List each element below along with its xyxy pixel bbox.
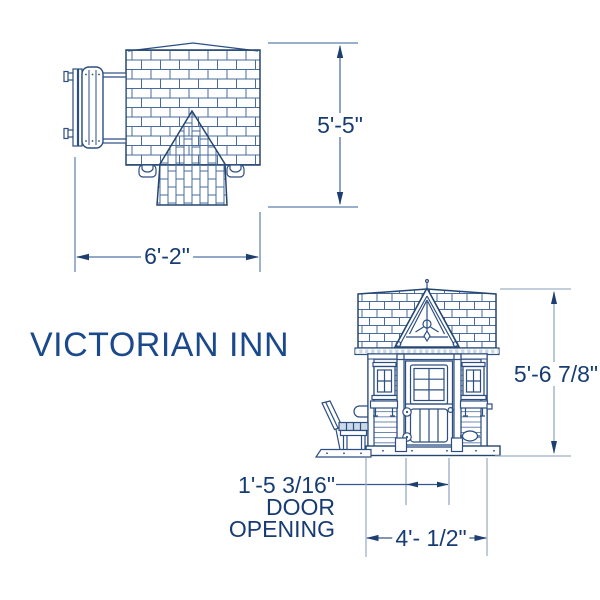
window-right-sill (461, 396, 486, 400)
bench-apron (341, 431, 367, 436)
door-plinth-left (396, 438, 407, 452)
bench-legs (344, 436, 366, 451)
side-peg (487, 404, 492, 409)
flower-box-right-box (461, 401, 488, 408)
dim-label-height-front: 5'-6 7/8" (511, 362, 600, 386)
oval-plaque (463, 431, 478, 441)
door-opening-word-opening: OPENING (229, 518, 335, 540)
dim-label-door-opening: 1'-5 3/16" DOOR OPENING (229, 474, 335, 540)
bench-plan (64, 67, 126, 148)
door-hinge-top-pin (406, 411, 408, 413)
door-plinth-right (452, 438, 463, 452)
window-left-sill (372, 396, 397, 400)
extension-lines-door-opening (406, 458, 449, 505)
top-view-drawing (64, 43, 260, 205)
window-left (372, 363, 397, 400)
bench-front (316, 401, 371, 457)
blueprint-canvas: VICTORIAN INN 5'-5" 6'-2" 5'-6 7/8" 1'-5… (0, 0, 600, 600)
bench-rail-outer (73, 69, 78, 146)
door-opening-value: 1'-5 3/16" (229, 474, 335, 496)
product-title: VICTORIAN INN (30, 326, 289, 365)
dim-label-width-top: 6'-2" (141, 244, 193, 268)
front-view-drawing (316, 280, 500, 457)
dim-label-width-front: 4'- 1/2" (392, 526, 469, 550)
door-assembly (396, 354, 463, 452)
bench-brace (336, 430, 340, 450)
bench-crossbar-top-cap (64, 72, 68, 82)
bench-crossbar-bottom-cap (64, 129, 68, 139)
door-opening-word-door: DOOR (229, 496, 335, 518)
dim-label-depth: 5'-5" (314, 113, 366, 137)
gable-finial-ball (426, 280, 429, 283)
bench-table-plan (102, 73, 126, 143)
window-right (461, 363, 486, 400)
side-shelf (354, 406, 368, 417)
bench-slat-panel-plan (82, 67, 103, 148)
flower-box-left-box (371, 401, 398, 408)
